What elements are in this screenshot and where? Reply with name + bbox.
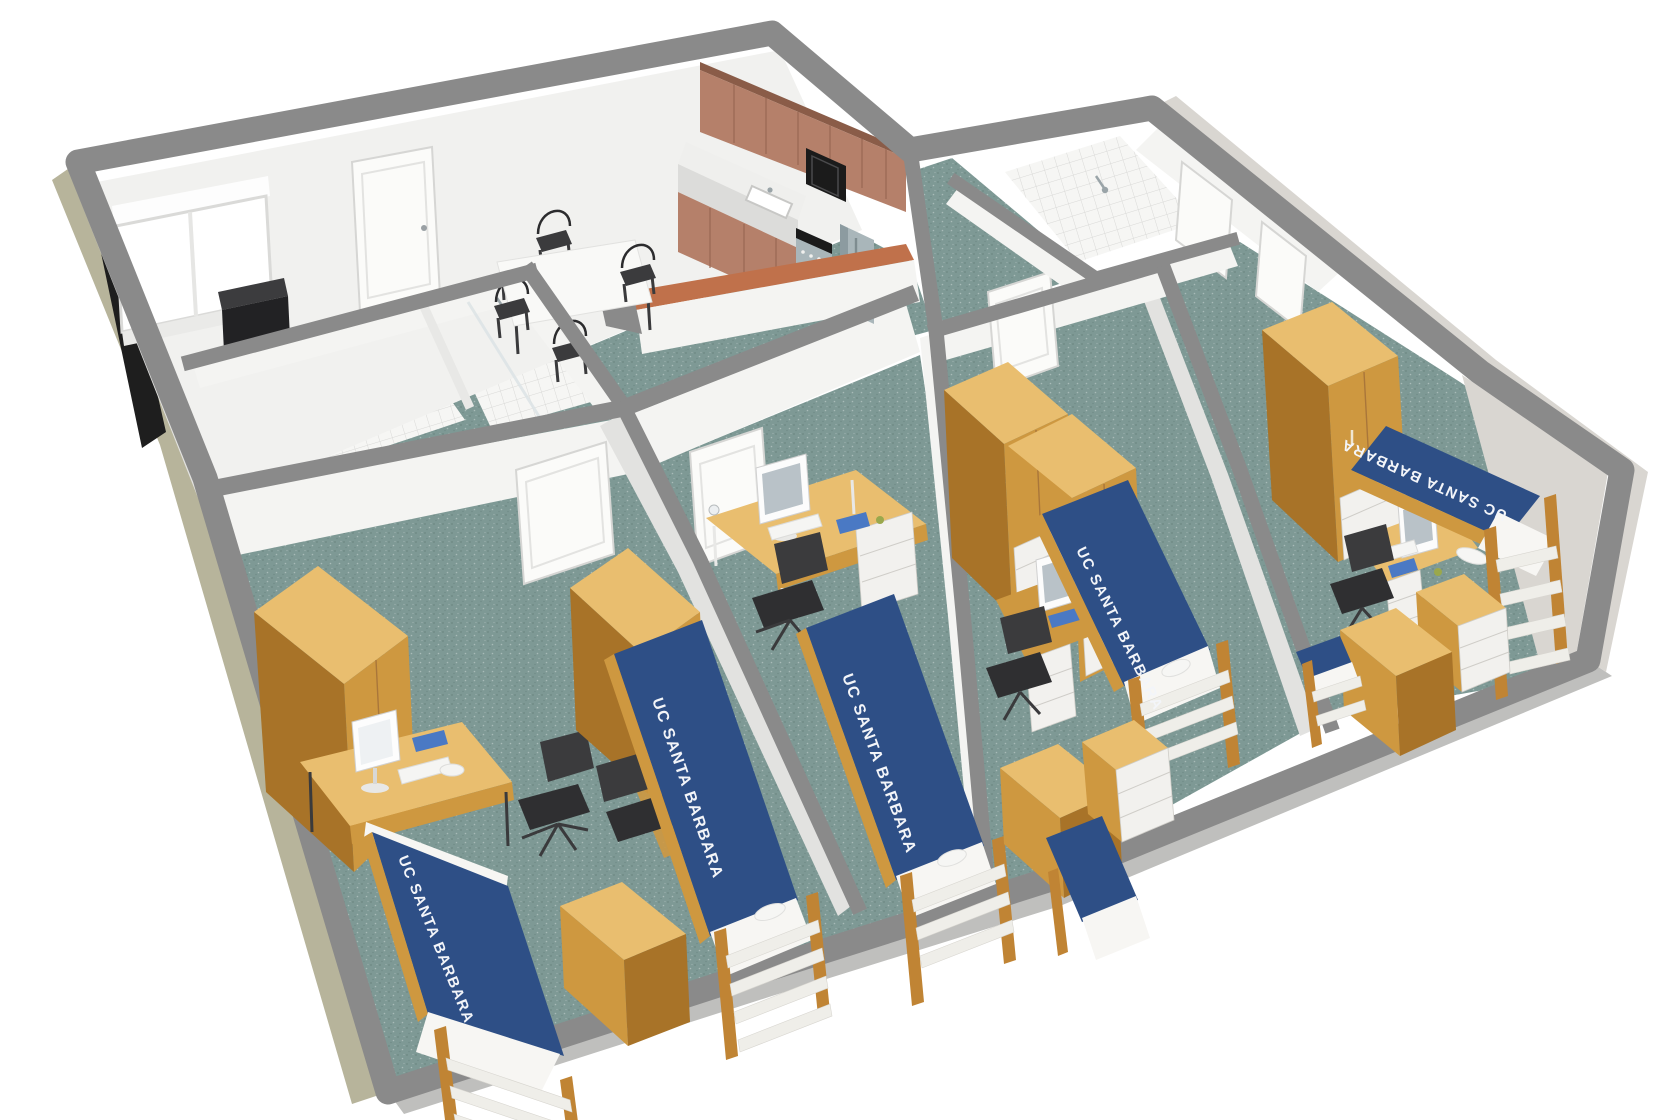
pear xyxy=(876,516,884,524)
clock xyxy=(709,505,719,515)
faucet xyxy=(767,187,772,192)
floorplan-render: UC SANTA BARBARA xyxy=(0,0,1680,1120)
pear xyxy=(1434,568,1442,576)
floorplan-svg: UC SANTA BARBARA xyxy=(0,0,1680,1120)
door-handle xyxy=(421,225,427,231)
paper-roll xyxy=(440,764,464,776)
entry-door xyxy=(352,147,440,312)
